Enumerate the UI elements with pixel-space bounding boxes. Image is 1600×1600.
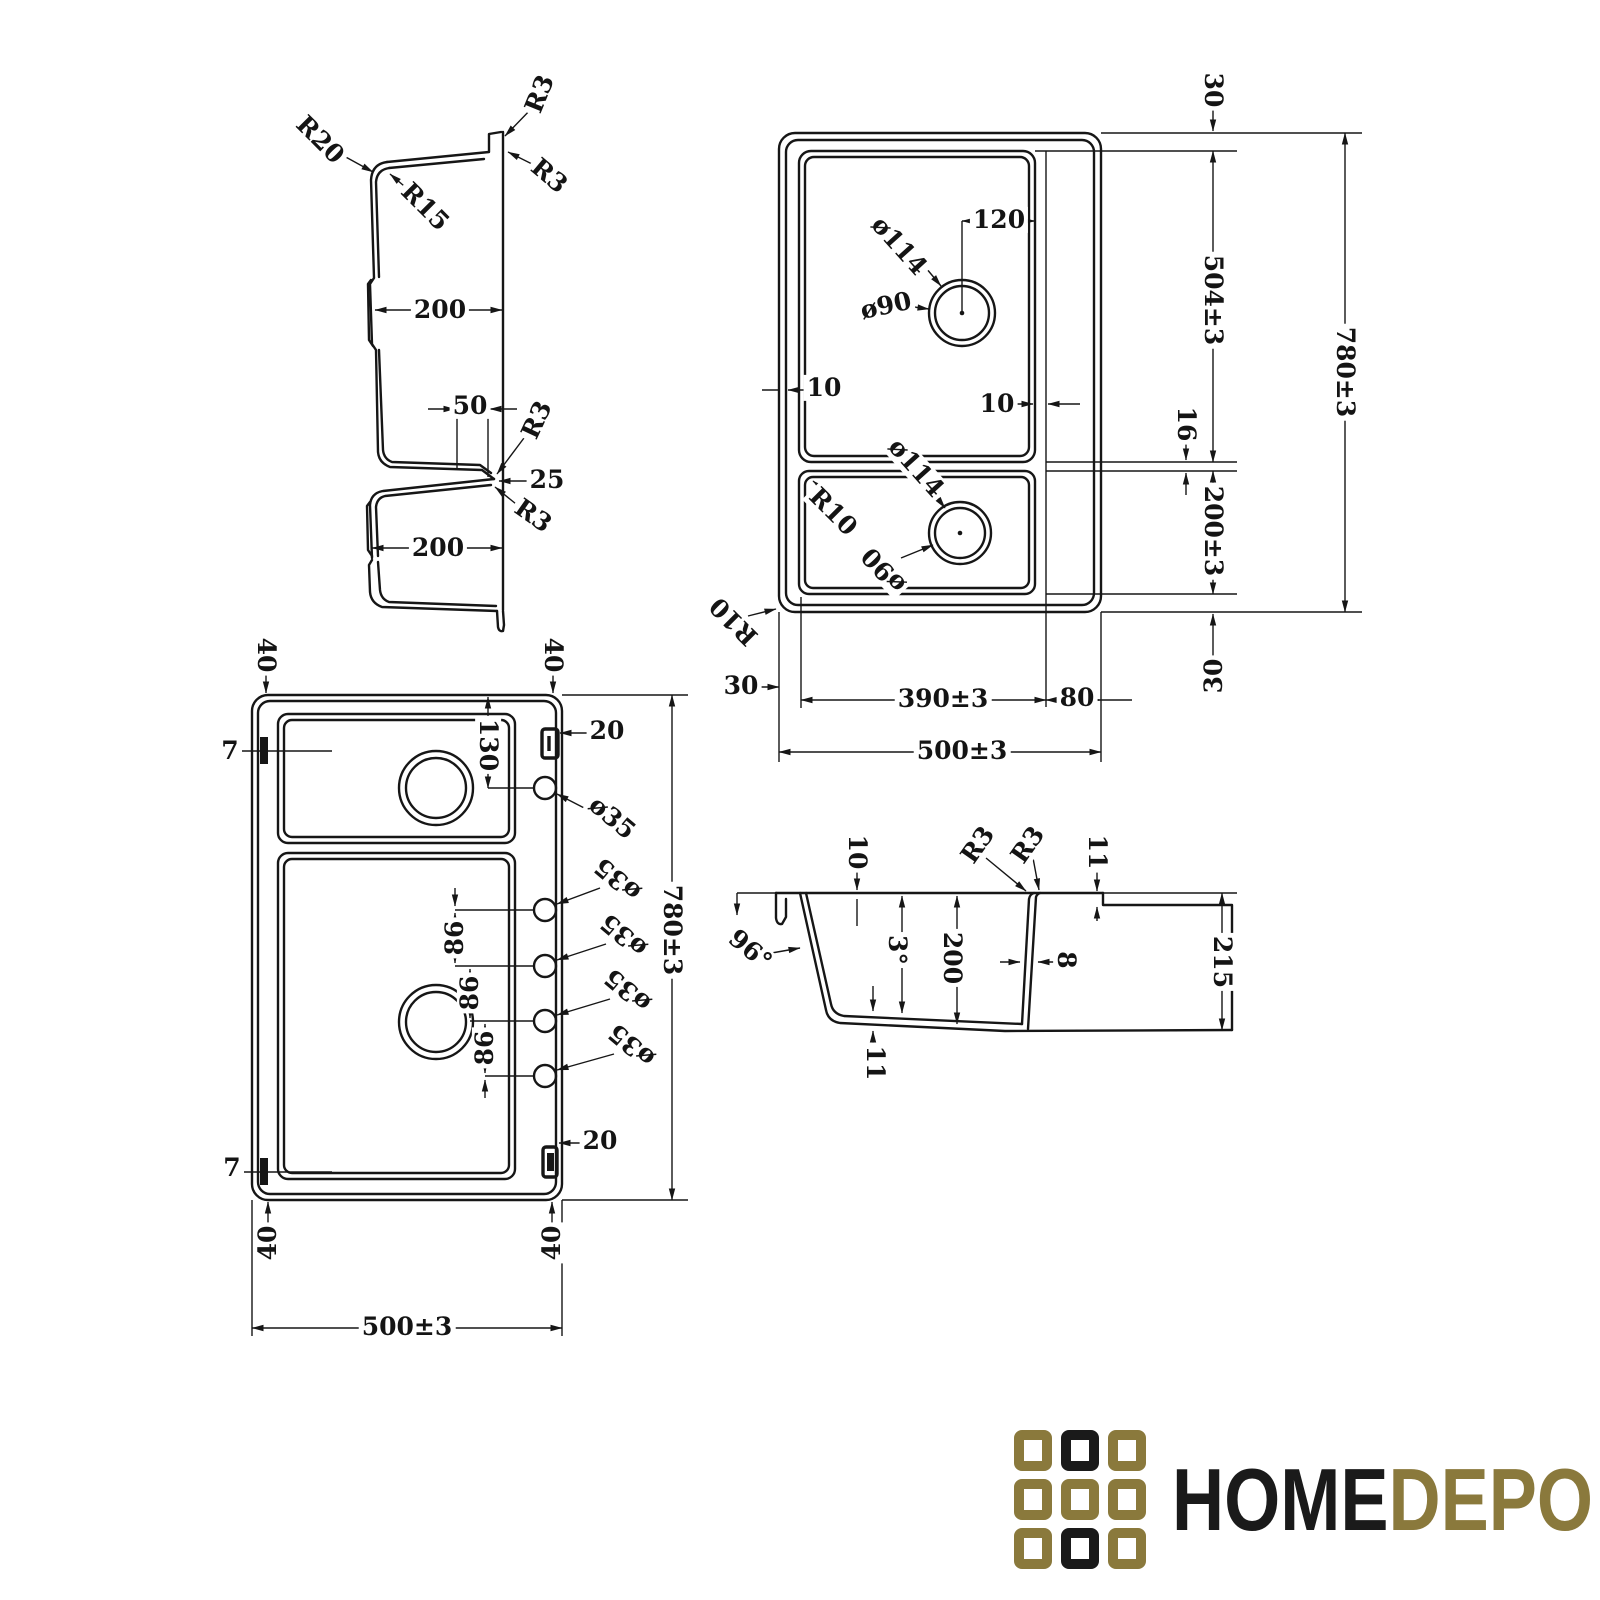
dim-label: 50 — [450, 393, 491, 419]
dim-label: 215 — [1209, 933, 1235, 991]
dim-label: 86 — [472, 1028, 498, 1069]
dimension-labels-layer: R20R15R3R320050R325R320030120ø114ø901010… — [0, 0, 1600, 1600]
dim-label: R3 — [520, 69, 561, 120]
logo-grid-cell — [1014, 1430, 1052, 1471]
dim-label: 40 — [540, 635, 566, 676]
logo-grid-cell — [1014, 1479, 1052, 1520]
dim-label: R10 — [802, 481, 864, 543]
dim-label: 780±3 — [1332, 324, 1358, 421]
dim-label: ø35 — [582, 789, 643, 846]
dim-label: 500±3 — [914, 738, 1011, 764]
logo-grid-cell — [1108, 1430, 1146, 1471]
dim-label: 11 — [1084, 832, 1110, 873]
brand-logo: HOMEDEPO — [1014, 1430, 1600, 1569]
blueprint-canvas: R20R15R3R320050R325R320030120ø114ø901010… — [0, 0, 1600, 1600]
dim-label: ø35 — [588, 850, 649, 907]
dim-label: 200±3 — [1200, 483, 1226, 580]
dim-label: 7 — [218, 738, 241, 764]
logo-grid-cell — [1061, 1528, 1099, 1569]
dim-label: ø35 — [594, 906, 655, 963]
dim-label: 86 — [457, 973, 483, 1014]
dim-label: R3 — [955, 819, 1002, 870]
dim-label: 11 — [862, 1043, 888, 1084]
dim-label: ø35 — [602, 1016, 663, 1073]
dim-label: ø35 — [598, 961, 659, 1018]
logo-grid-cell — [1108, 1528, 1146, 1569]
dim-label: ø90 — [855, 287, 917, 325]
dim-label: R15 — [394, 176, 456, 238]
dim-label: ø90 — [855, 540, 913, 600]
dim-label: 130 — [475, 716, 501, 774]
dim-label: 504±3 — [1200, 252, 1226, 349]
dim-label: 7 — [220, 1155, 243, 1181]
dim-label: R3 — [1005, 819, 1052, 870]
dim-label: 3° — [884, 932, 910, 968]
dim-label: 10 — [844, 832, 870, 873]
dim-label: 40 — [253, 635, 279, 676]
dim-label: 200 — [409, 535, 467, 561]
logo-grid-cell — [1061, 1479, 1099, 1520]
dim-label: 20 — [587, 718, 628, 744]
dim-label: 390±3 — [895, 686, 992, 712]
dim-label: 40 — [255, 1223, 281, 1264]
dim-label: 500±3 — [359, 1314, 456, 1340]
dim-label: ø114 — [881, 431, 951, 504]
logo-grid-cell — [1014, 1528, 1052, 1569]
dim-label: 8 — [1053, 948, 1079, 971]
dim-label: R3 — [524, 152, 575, 201]
dim-label: 96° — [721, 923, 779, 977]
dim-label: 200 — [939, 929, 965, 987]
dim-label: 10 — [804, 375, 845, 401]
logo-grid-cell — [1061, 1430, 1099, 1471]
dim-label: 16 — [1173, 404, 1199, 445]
dim-label: 30 — [721, 673, 762, 699]
dim-label: R3 — [507, 493, 558, 540]
dim-label: R20 — [289, 109, 351, 171]
dim-label: 780±3 — [659, 882, 685, 979]
dim-label: ø114 — [864, 209, 934, 282]
dim-label: 30 — [1201, 656, 1227, 697]
dim-label: R3 — [516, 394, 558, 445]
dim-label: 25 — [527, 467, 568, 493]
dim-label: 80 — [1057, 685, 1098, 711]
dim-label: 200 — [411, 297, 469, 323]
dim-label: 86 — [442, 918, 468, 959]
dim-label: 10 — [977, 391, 1018, 417]
dim-label: 40 — [539, 1223, 565, 1264]
dim-label: 20 — [580, 1128, 621, 1154]
dim-label: 120 — [970, 207, 1028, 233]
dim-label: 30 — [1200, 70, 1226, 111]
logo-grid-cell — [1108, 1479, 1146, 1520]
logo-word-home: HOME — [1172, 1450, 1388, 1549]
logo-wordmark: HOMEDEPO — [1172, 1449, 1593, 1551]
logo-grid — [1014, 1430, 1146, 1569]
dim-label: R10 — [703, 590, 765, 652]
logo-word-depo: DEPO — [1388, 1450, 1593, 1549]
